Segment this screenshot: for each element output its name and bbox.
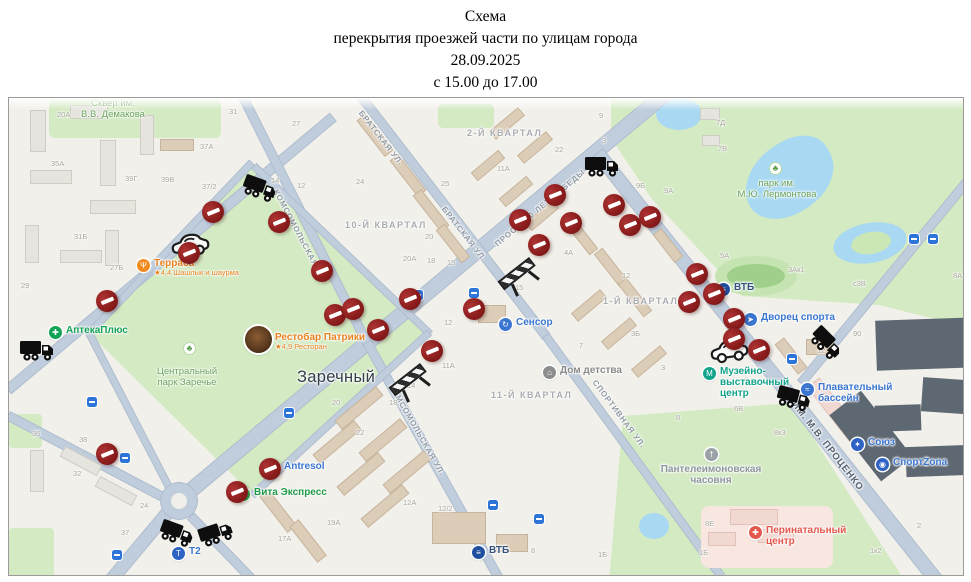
transit-stop-icon [928, 234, 938, 244]
transit-stop-icon [787, 354, 797, 364]
transit-stop-icon [284, 408, 294, 418]
building-number: 37/2 [202, 182, 217, 191]
building-number: 6В [734, 404, 743, 413]
building [433, 513, 485, 543]
building [291, 521, 326, 562]
building-number: 1Б [699, 548, 708, 557]
building [106, 231, 118, 265]
tree-icon: ♣ [183, 342, 196, 355]
panteleimonovskaya-chasovnya-label: Пантелеимоновскаячасовня [661, 464, 762, 486]
building [101, 141, 115, 185]
transit-stop-icon [469, 288, 479, 298]
building-number: 12 [444, 318, 452, 327]
building-number: 8А [953, 271, 962, 280]
dom-detstva-label: Дом детства [560, 365, 622, 376]
building-number: 24 [356, 177, 364, 186]
locality-label: Заречный [297, 368, 375, 387]
building-number: 9 [599, 111, 603, 120]
terrassa-icon: Ψ [137, 259, 150, 272]
building-number: 22 [356, 428, 364, 437]
building-number: 35А [51, 159, 64, 168]
park-area [9, 528, 54, 576]
building-number: 38 [79, 435, 87, 444]
building [61, 251, 101, 262]
building-number: 8к3 [774, 428, 786, 437]
plavatelny-bassein-label: Плавательныйбассейн [818, 382, 892, 404]
apteka-plus-label: АптекаПлюс [66, 325, 128, 336]
building-number: 25 [441, 179, 449, 188]
perinatalny-centr-label: Перинатальныйцентр [766, 525, 846, 547]
dvorets-sporta-icon: ➤ [744, 313, 757, 326]
sportzona-label: СпортZona [893, 457, 947, 468]
building-dark [875, 317, 964, 370]
building-number: 37А [200, 142, 213, 151]
building-number: 7 [579, 341, 583, 350]
building-number: 39Г [125, 174, 137, 183]
building [141, 116, 153, 154]
building-number: 39В [161, 175, 174, 184]
building-number: 12/2 [438, 504, 453, 513]
dom-detstva-icon: ⌂ [543, 366, 556, 379]
building [709, 533, 735, 545]
sensor-label: Сенсор [516, 317, 553, 328]
title-line-1: Схема [0, 6, 971, 28]
building [26, 226, 38, 262]
building [91, 201, 135, 213]
antresol-label: Antresol [284, 461, 325, 472]
vtb-south-icon: ≡ [472, 546, 485, 559]
truck-icon [19, 338, 55, 362]
building-number: 31Б [74, 232, 87, 241]
building-number: 8Е [705, 519, 714, 528]
park-label: парк им.М.Ю. Лермонтова [737, 178, 816, 200]
quarter-label: 10-Й КВАРТАЛ [345, 220, 427, 230]
building-number: 20А [57, 110, 70, 119]
building-number: 12 [297, 181, 305, 190]
vtb-south-label: ВТБ [489, 545, 509, 556]
building [632, 346, 665, 376]
t2-icon: Т [172, 547, 185, 560]
building-number: 9Б [636, 181, 645, 190]
vita-express-label: Вита Экспресс [254, 487, 327, 498]
transit-stop-icon [534, 514, 544, 524]
building-number: 90 [853, 329, 861, 338]
building-number: 20 [425, 232, 433, 241]
quarter-label: 1-Й КВАРТАЛ [603, 296, 678, 306]
patriki-label: Рестобар Патрики★4,9 Ресторан [275, 332, 365, 352]
transit-stop-icon [87, 397, 97, 407]
building-number: 17А [278, 534, 291, 543]
building-number: 19А [327, 518, 340, 527]
sportzona-icon: ◉ [876, 458, 889, 471]
title-line-4: с 15.00 до 17.00 [0, 72, 971, 94]
building-number: 1к2 [870, 546, 882, 555]
building [31, 171, 71, 183]
building-number: 2 [917, 521, 921, 530]
transit-stop-icon [120, 453, 130, 463]
quarter-label: 2-Й КВАРТАЛ [467, 128, 542, 138]
building-number: 9А [664, 186, 673, 195]
transit-stop-icon [909, 234, 919, 244]
title-line-2: перекрытия проезжей части по улицам горо… [0, 28, 971, 50]
roundabout [161, 483, 197, 519]
building-number: 37 [121, 528, 129, 537]
building [31, 451, 43, 491]
building-number: 1Б [598, 550, 607, 559]
building-number: 29 [21, 281, 29, 290]
building-number: 32 [73, 469, 81, 478]
title-line-3: 28.09.2025 [0, 50, 971, 72]
building-number: с3В [853, 279, 866, 288]
building-dark [921, 377, 964, 415]
building-number: 3 [661, 363, 665, 372]
building-number: 5А [720, 251, 729, 260]
sensor-icon: ↻ [499, 318, 512, 331]
building-number: 18 [427, 256, 435, 265]
building [731, 510, 777, 524]
truck-icon [584, 154, 620, 178]
building-number: 11А [442, 361, 455, 370]
building-number: 36 [32, 429, 40, 438]
building [338, 453, 384, 494]
building-number: 20 [332, 398, 340, 407]
building-number: 11А [497, 164, 510, 173]
muzeyno-vystavochny-centr-icon: М [703, 367, 716, 380]
tree-icon: ♣ [769, 162, 782, 175]
transit-stop-icon [488, 500, 498, 510]
patriki-photo [245, 326, 272, 353]
building-number: 22 [555, 145, 563, 154]
dvorets-sporta-label: Дворец спорта [761, 312, 835, 323]
transit-stop-icon [112, 550, 122, 560]
building [360, 419, 406, 460]
building-number: 3 [602, 136, 606, 145]
pond [639, 513, 669, 539]
building-number: 4А [564, 248, 573, 257]
map-top-fade [9, 98, 963, 110]
scheme-title: Схема перекрытия проезжей части по улица… [0, 6, 971, 94]
building [572, 290, 605, 320]
building-number: 8 [676, 413, 680, 422]
perinatalny-centr-icon: ✚ [749, 526, 762, 539]
building-number: 7В [718, 144, 727, 153]
quarter-label: 11-Й КВАРТАЛ [491, 390, 572, 400]
building-number: 15 [447, 258, 455, 267]
building-number: 24 [140, 501, 148, 510]
map: 2-Й КВАРТАЛ10-Й КВАРТАЛ1-Й КВАРТАЛ11-Й К… [8, 97, 964, 576]
panteleimonovskaya-chasovnya-icon: † [705, 448, 718, 461]
park-label: Центральныйпарк Заречье [157, 366, 217, 388]
building [703, 136, 719, 145]
building [362, 485, 408, 526]
building-number: 27 [292, 119, 300, 128]
building [31, 111, 45, 151]
building-number: 20А [403, 254, 416, 263]
building-number: 12А [403, 498, 416, 507]
barrier-icon [493, 253, 546, 304]
building [384, 451, 430, 492]
building-number: 8 [531, 546, 535, 555]
building-number: 7Д [716, 118, 725, 127]
soyuz-icon: ✦ [851, 438, 864, 451]
soyuz-label: Союз [868, 437, 895, 448]
building-number: 12 [622, 271, 630, 280]
building-number: 3Ак1 [788, 265, 805, 274]
building-number: 27Б [110, 263, 123, 272]
building-number: 3Б [631, 329, 640, 338]
building [161, 140, 193, 150]
vtb-north-label: ВТБ [734, 282, 754, 293]
